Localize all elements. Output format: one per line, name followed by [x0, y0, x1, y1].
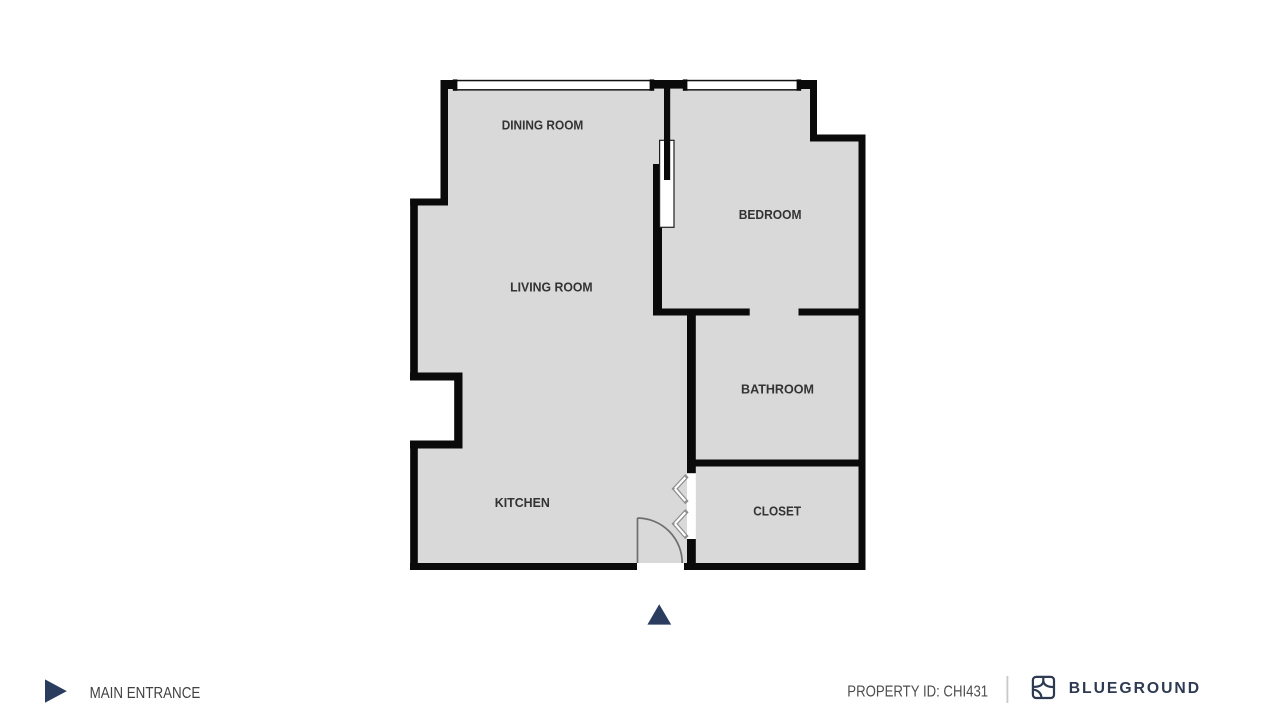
svg-text:PROPERTY ID: CHI431: PROPERTY ID: CHI431 — [847, 684, 988, 701]
svg-text:BLUEGROUND: BLUEGROUND — [1069, 680, 1201, 697]
svg-text:MAIN ENTRANCE: MAIN ENTRANCE — [90, 685, 201, 702]
svg-text:BEDROOM: BEDROOM — [739, 207, 802, 222]
svg-text:CLOSET: CLOSET — [753, 504, 801, 519]
svg-text:BATHROOM: BATHROOM — [741, 382, 814, 397]
svg-text:LIVING ROOM: LIVING ROOM — [510, 280, 593, 295]
svg-text:KITCHEN: KITCHEN — [495, 495, 550, 510]
svg-text:DINING ROOM: DINING ROOM — [502, 117, 584, 132]
